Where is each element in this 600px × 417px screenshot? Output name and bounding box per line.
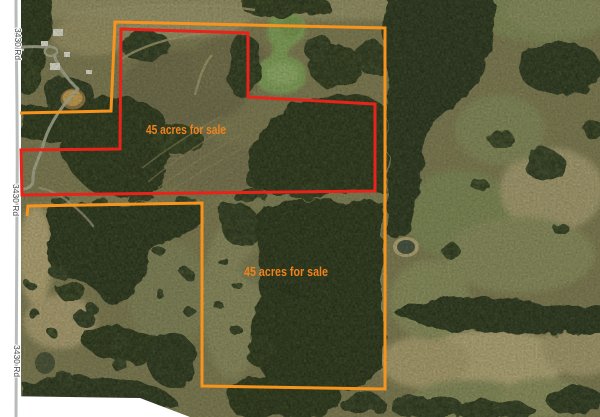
svg-text:3430 Rd: 3430 Rd bbox=[11, 184, 21, 216]
svg-text:45 acres for sale: 45 acres for sale bbox=[146, 122, 226, 137]
svg-text:45 acres for sale: 45 acres for sale bbox=[244, 264, 328, 279]
svg-text:3430 Rd: 3430 Rd bbox=[13, 28, 23, 60]
svg-text:3430 Rd: 3430 Rd bbox=[12, 345, 22, 377]
